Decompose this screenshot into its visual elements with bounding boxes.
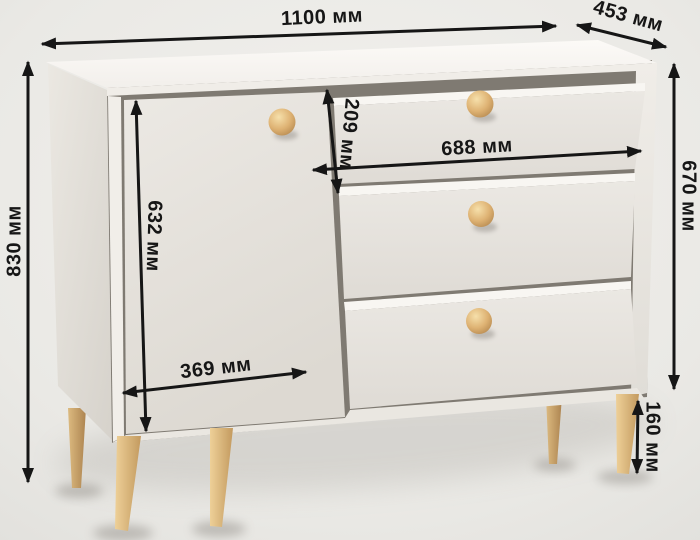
dim-leg-height-label: 160 мм <box>642 401 664 473</box>
drawer-1-knob <box>467 91 494 118</box>
dim-body-height-label: 670 мм <box>678 160 700 232</box>
dim-leg-height-arrow <box>637 401 638 473</box>
drawer-2-knob <box>468 201 494 227</box>
dresser-illustration: 1100 мм 453 мм 830 мм 670 мм 209 мм 688 … <box>0 0 700 540</box>
door-knob <box>269 109 296 136</box>
dim-door-height-label: 632 мм <box>142 200 166 272</box>
dim-drawer-width-label: 688 мм <box>441 134 514 160</box>
dim-overall-height-label: 830 мм <box>3 205 25 277</box>
drawer-3-knob <box>466 308 492 334</box>
dimension-diagram: 1100 мм 453 мм 830 мм 670 мм 209 мм 688 … <box>0 0 700 540</box>
dim-overall-width-label: 1100 мм <box>281 5 364 31</box>
